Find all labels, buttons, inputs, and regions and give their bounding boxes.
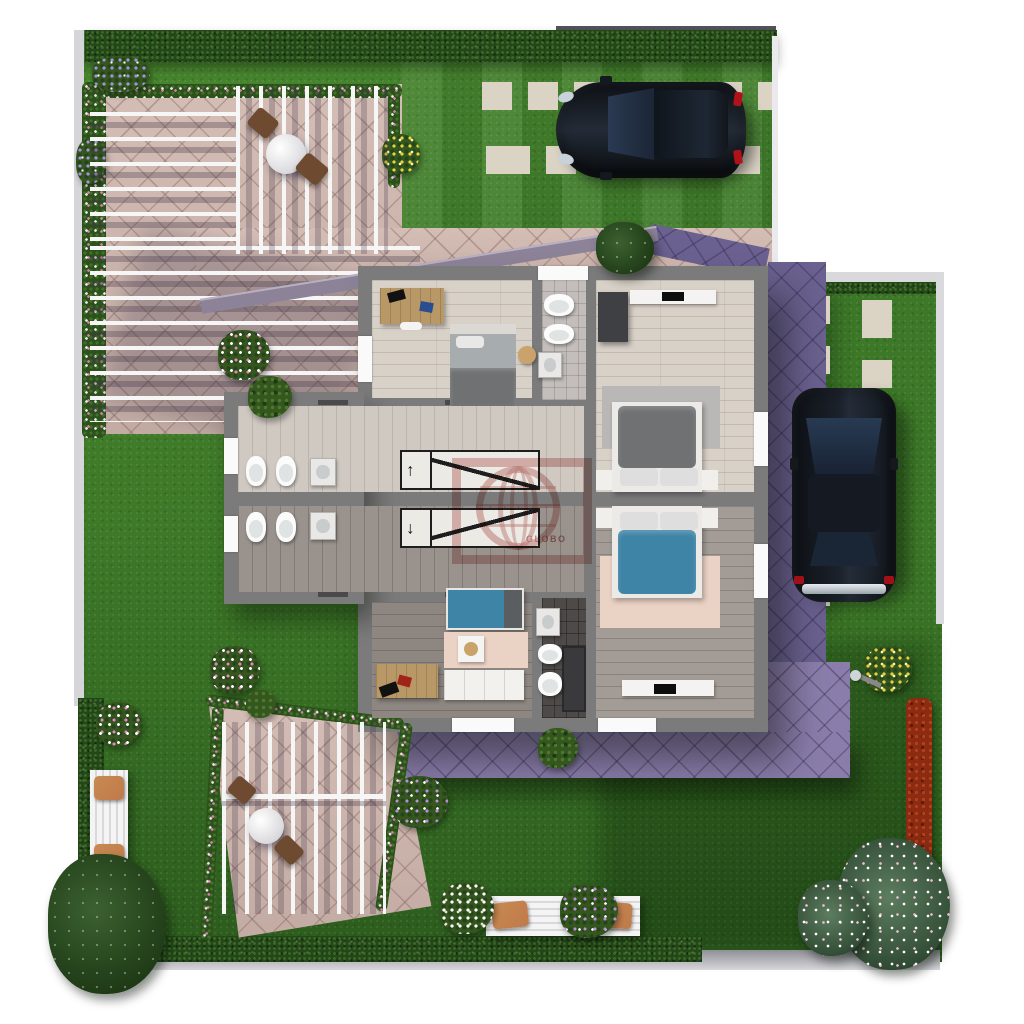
toilet-hall-bottom [246,512,266,542]
single-bed-top-blanket [450,368,516,406]
watermark-logo: GLOBO [452,458,592,564]
stair-landing-bottom: ↓ [402,510,432,546]
door-track-top-1 [318,400,348,405]
car-right-taillight-2 [884,576,894,584]
rug-bottom-left [444,632,528,668]
lamp-post-head [850,670,861,681]
watermark-globe-equator [476,504,560,508]
conifer-bottom-left [48,854,166,994]
single-bed-top-pillow [456,336,484,348]
single-bed-bottom-foot [504,590,522,628]
bottom-hedge [82,936,702,962]
nightstand-top-2 [702,470,718,490]
desk-mat [400,322,422,330]
nightstand-top-1 [596,470,612,490]
sink-hall-top [310,458,336,486]
window-top-wall [538,266,588,280]
bidet-bath-top [544,324,574,344]
top-hedge [85,30,777,62]
double-bed-top-pillow-1 [620,468,658,486]
sink-hall-bottom [310,512,336,540]
tv-top [662,292,684,301]
car-right-mirror-2 [890,458,898,470]
car-right-taillight-1 [794,576,804,584]
door-track-bottom-1 [318,592,348,597]
stair-landing-top: ↑ [402,452,432,488]
car-right-rear-window [810,532,878,566]
conifer-bottom-right-small [798,880,868,956]
toilet-bath-bottom [538,672,562,696]
shower-bottom [562,646,586,712]
notebook-top-left [419,301,434,313]
pergola-top-slats-upper [90,112,238,246]
double-bed-top-duvet [618,406,696,468]
bedside-stool-top [518,346,536,364]
tv-bottom [654,684,676,694]
bidet-hall-bottom [276,512,296,542]
bench-bottom-cushion-1 [491,900,530,930]
wardrobe-white [444,670,524,700]
double-bed-bottom-pillow-1 [620,512,658,530]
bidet-bath-bottom [538,644,562,664]
car-top [556,76,754,186]
nightstand-bottom-1 [596,508,612,528]
sink-bath-top [538,352,562,378]
palm-plant-top [596,222,654,274]
bidet-hall-top [276,456,296,486]
bench-left-cushion-1 [94,776,124,800]
car-right-mirror-1 [790,458,798,470]
single-bed-bottom-blanket [448,590,504,628]
floor-plan-render: ↑ ↓ [0,0,1024,1024]
car-right-windshield [806,418,882,474]
window-right-wall-2 [754,544,768,598]
pergola-bottom-slats [222,722,386,914]
window-wing-left-1 [224,438,238,474]
window-right-wall-1 [754,412,768,466]
stair-down-arrow: ↓ [406,520,415,537]
car-top-mirror-1 [600,76,612,84]
boundary-wall-right [936,272,944,624]
car-right [792,388,908,610]
double-bed-bottom-pillow-2 [660,512,698,530]
car-right-roof [808,474,880,532]
window-bottom-wall-1 [452,718,514,732]
double-bed-top-pillow-2 [660,468,698,486]
watermark-globe-parallel-1 [480,486,556,489]
watermark-brand-text: GLOBO [526,534,567,544]
outside-white-notch [776,0,1024,276]
stair-up-arrow: ↑ [406,462,415,479]
window-room-tl-left [358,336,372,382]
side-table-tray [464,642,478,656]
double-bed-bottom-duvet [618,530,696,594]
patio-table-bottom [248,808,284,844]
window-bottom-wall-2 [598,718,656,732]
toilet-hall-top [246,456,266,486]
roof-band-corner [768,662,850,732]
car-top-windshield [608,88,654,160]
boundary-fence-top-right [772,36,778,276]
car-right-bumper [802,584,886,594]
car-top-roof-glass [654,90,728,158]
window-wing-left-2 [224,516,238,552]
wardrobe-dark [598,292,628,342]
sink-bath-bottom [536,608,560,636]
single-bed-top-headboard [450,324,516,334]
toilet-bath-top [544,294,574,316]
car-top-mirror-2 [600,172,612,180]
nightstand-bottom-2 [702,508,718,528]
watermark-globe-parallel-2 [480,524,556,527]
